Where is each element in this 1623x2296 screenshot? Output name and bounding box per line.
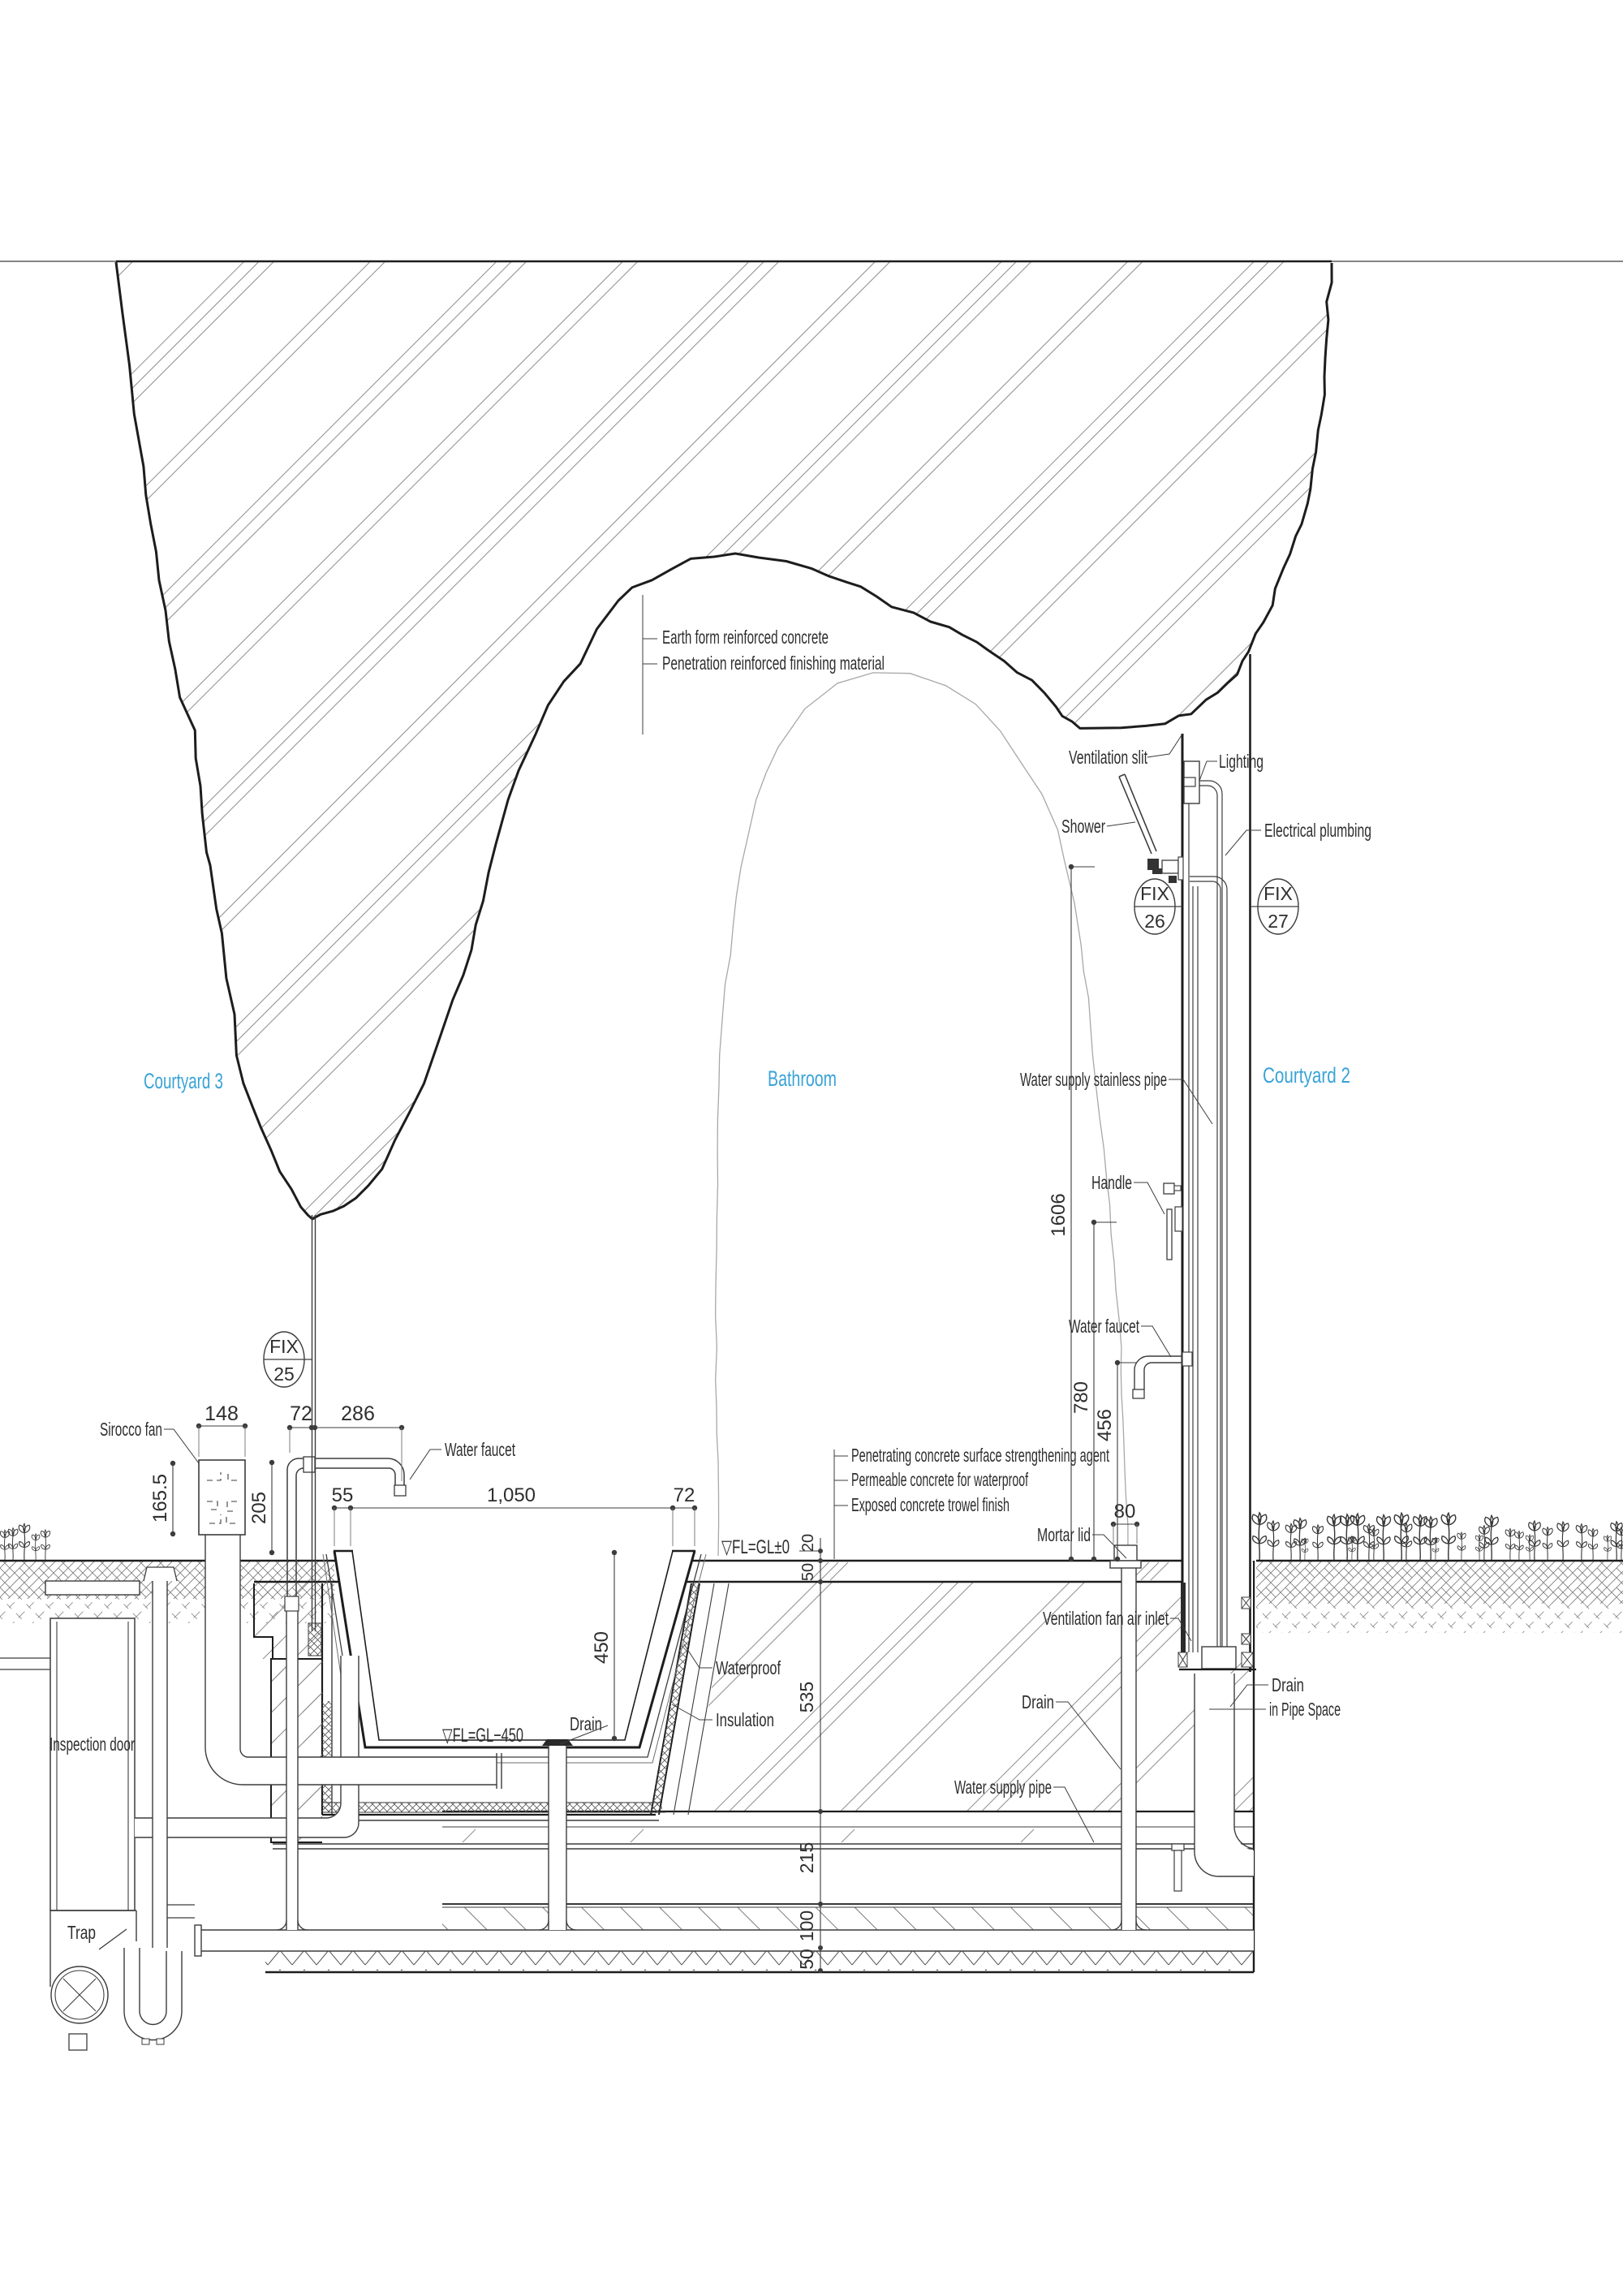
- svg-text:Waterproof: Waterproof: [716, 1657, 781, 1678]
- svg-text:1606: 1606: [1048, 1193, 1070, 1236]
- svg-text:▽FL=GL±0: ▽FL=GL±0: [721, 1536, 790, 1558]
- svg-text:▽FL=GL−450: ▽FL=GL−450: [442, 1725, 523, 1747]
- svg-text:Drain: Drain: [570, 1713, 602, 1734]
- svg-text:Water supply stainless pipe: Water supply stainless pipe: [1020, 1069, 1167, 1090]
- svg-text:286: 286: [341, 1402, 375, 1425]
- svg-text:25: 25: [273, 1363, 295, 1385]
- svg-text:Courtyard 3: Courtyard 3: [144, 1069, 223, 1093]
- svg-text:165.5: 165.5: [149, 1474, 171, 1523]
- svg-text:26: 26: [1144, 911, 1165, 932]
- svg-text:FIX: FIX: [269, 1336, 299, 1357]
- svg-text:456: 456: [1094, 1409, 1116, 1441]
- svg-text:55: 55: [332, 1484, 354, 1506]
- svg-text:50: 50: [796, 1949, 817, 1970]
- svg-text:Inspection door: Inspection door: [50, 1734, 135, 1755]
- svg-text:Courtyard 2: Courtyard 2: [1263, 1063, 1350, 1088]
- svg-text:72: 72: [290, 1402, 312, 1425]
- svg-text:535: 535: [796, 1682, 817, 1712]
- svg-text:Mortar lid: Mortar lid: [1037, 1524, 1091, 1545]
- svg-text:Permeable concrete for waterpr: Permeable concrete for waterproof: [851, 1469, 1028, 1490]
- svg-text:Drain: Drain: [1272, 1674, 1304, 1695]
- svg-text:20: 20: [799, 1534, 817, 1552]
- svg-text:450: 450: [591, 1631, 613, 1664]
- svg-text:80: 80: [1114, 1501, 1136, 1523]
- svg-text:Trap: Trap: [67, 1922, 96, 1943]
- svg-text:72: 72: [674, 1484, 695, 1506]
- svg-text:1,050: 1,050: [487, 1484, 536, 1506]
- svg-text:Earth form reinforced concrete: Earth form reinforced concrete: [662, 627, 829, 648]
- svg-text:Drain: Drain: [1022, 1691, 1054, 1712]
- svg-text:Ventilation slit: Ventilation slit: [1069, 747, 1147, 768]
- svg-text:Lighting: Lighting: [1219, 751, 1264, 772]
- svg-text:Handle: Handle: [1091, 1172, 1132, 1193]
- svg-text:Penetrating concrete surface s: Penetrating concrete surface strengtheni…: [851, 1445, 1109, 1466]
- svg-text:FIX: FIX: [1264, 883, 1293, 904]
- svg-text:Ventilation fan air inlet: Ventilation fan air inlet: [1043, 1608, 1169, 1629]
- svg-text:100: 100: [796, 1910, 817, 1941]
- svg-text:215: 215: [796, 1842, 817, 1873]
- svg-text:Bathroom: Bathroom: [768, 1066, 837, 1091]
- svg-text:Shower: Shower: [1061, 816, 1105, 837]
- svg-text:Water faucet: Water faucet: [445, 1439, 515, 1460]
- svg-text:Insulation: Insulation: [716, 1709, 774, 1730]
- svg-text:Water faucet: Water faucet: [1069, 1316, 1139, 1337]
- svg-text:Exposed concrete trowel finish: Exposed concrete trowel finish: [851, 1494, 1010, 1515]
- svg-text:Penetration reinforced finishi: Penetration reinforced finishing materia…: [662, 653, 885, 674]
- svg-text:148: 148: [204, 1402, 239, 1425]
- svg-text:Electrical plumbing: Electrical plumbing: [1264, 820, 1371, 841]
- svg-text:FIX: FIX: [1140, 883, 1169, 904]
- svg-text:27: 27: [1268, 911, 1289, 932]
- svg-text:Water supply pipe: Water supply pipe: [954, 1777, 1052, 1798]
- svg-text:205: 205: [248, 1492, 270, 1524]
- svg-text:780: 780: [1070, 1381, 1092, 1414]
- svg-text:50: 50: [799, 1563, 817, 1581]
- svg-text:in Pipe Space: in Pipe Space: [1269, 1699, 1341, 1720]
- svg-text:Sirocco fan: Sirocco fan: [100, 1419, 162, 1440]
